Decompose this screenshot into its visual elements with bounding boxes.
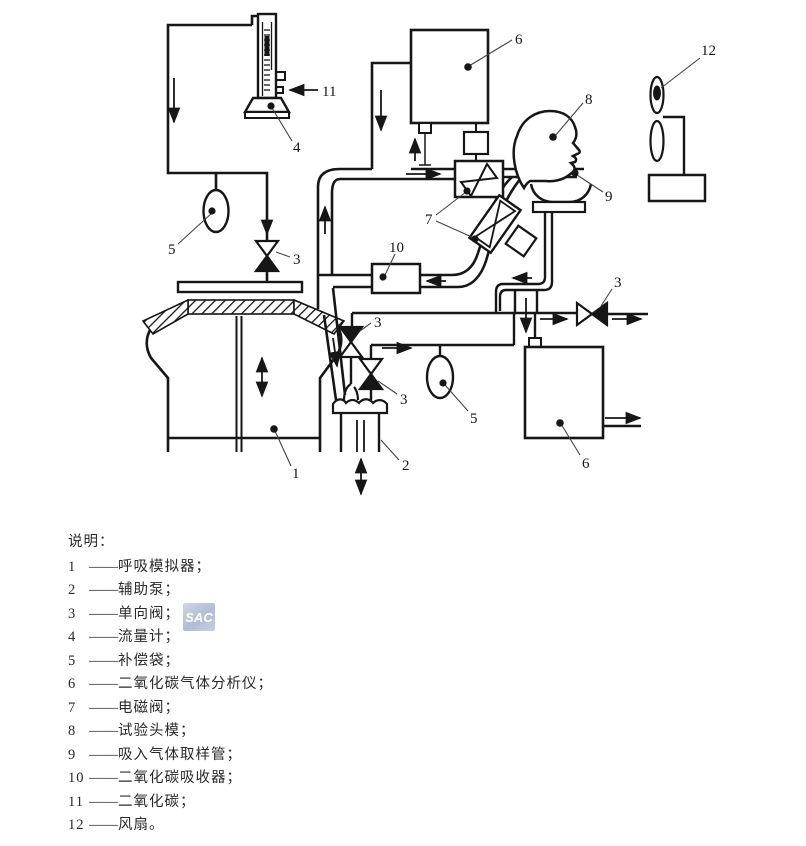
label-4: 4 [293, 140, 301, 156]
legend-item-number: 6 [68, 673, 89, 697]
legend-dash: —— [89, 676, 118, 692]
legend-item: 5——补偿袋； [68, 650, 273, 674]
pedestal-bowl [531, 184, 591, 202]
legend-item-number: 12 [68, 814, 89, 838]
pump-check-valve-outlet [360, 359, 382, 400]
bell-right-wall [320, 327, 341, 452]
breathing-simulator [143, 282, 344, 452]
legend-item-number: 8 [68, 720, 89, 744]
legend-dash: —— [89, 723, 118, 739]
legend-item: 3——单向阀； [68, 603, 273, 627]
pedestal-base [533, 202, 585, 212]
flowmeter [245, 14, 289, 118]
legend-item-number: 7 [68, 697, 89, 721]
solenoid-coil [464, 132, 488, 154]
legend-item-text: 电磁阀； [118, 700, 180, 716]
analyzer-inlet-port [529, 338, 541, 347]
flowmeter-float [265, 36, 270, 56]
label-10: 10 [389, 240, 404, 256]
legend-dash: —— [89, 700, 118, 716]
bell-left-wall [147, 330, 168, 452]
check-valve-simulator-inlet [256, 241, 278, 271]
legend-item: 8——试验头模； [68, 720, 273, 744]
label-5: 5 [168, 242, 176, 258]
solenoid-coil [506, 226, 537, 257]
diaphragm-left-wing [143, 300, 188, 334]
legend-item: 4——流量计； [68, 626, 273, 650]
legend-item-number: 2 [68, 579, 89, 603]
co2-feed-circuit [168, 16, 267, 283]
legend-item: 7——电磁阀； [68, 697, 273, 721]
label-12: 12 [701, 43, 716, 59]
legend-dash: —— [89, 770, 118, 786]
label-5: 5 [470, 411, 478, 427]
label-8: 8 [585, 92, 593, 108]
legend-item-number: 9 [68, 744, 89, 768]
legend-item-number: 3 [68, 603, 89, 627]
flowmeter-base [245, 98, 289, 112]
legend-item: 6——二氧化碳气体分析仪； [68, 673, 273, 697]
legend-item-text: 风扇。 [118, 817, 165, 833]
legend-item: 1——呼吸模拟器； [68, 556, 273, 580]
flowmeter-base-plate [245, 112, 289, 118]
loop-vertical-inner [332, 179, 340, 275]
label-6: 6 [515, 32, 523, 48]
legend-item-number: 11 [68, 791, 89, 815]
diaphragm-band [188, 300, 294, 314]
compensating-bag-left [204, 190, 229, 232]
legend-item: 11——二氧化碳； [68, 791, 273, 815]
legend-dash: —— [89, 817, 118, 833]
legend-item: 2——辅助泵； [68, 579, 273, 603]
check-valve-exhaust [577, 303, 607, 325]
solenoid-coil-exhale [506, 226, 537, 257]
legend-item: 12——风扇。 [68, 814, 273, 838]
label-3: 3 [374, 315, 382, 331]
legend-dash: —— [89, 606, 118, 622]
legend-item-text: 补偿袋； [118, 653, 180, 669]
legend-item-text: 吸入气体取样管； [118, 747, 242, 763]
fan-blade-hub-dark [653, 86, 661, 101]
legend-item: 10——二氧化碳吸收器； [68, 767, 273, 791]
legend-dash: —— [89, 559, 118, 575]
label-11: 11 [322, 84, 336, 100]
fan [649, 77, 705, 201]
auxiliary-pump [333, 384, 387, 452]
legend-dash: —— [89, 629, 118, 645]
analyzer-sample-port [419, 123, 431, 133]
legend-item-text: 流量计； [118, 629, 180, 645]
legend-item-text: 单向阀； [118, 606, 180, 622]
legend-dash: —— [89, 747, 118, 763]
legend: 说明： 1——呼吸模拟器； 2——辅助泵； 3——单向阀； 4——流量计； 5—… [68, 531, 273, 838]
flow-arrow-down [333, 338, 337, 366]
label-6: 6 [582, 456, 590, 472]
legend-item-text: 二氧化碳气体分析仪； [118, 676, 273, 692]
legend-item-number: 5 [68, 650, 89, 674]
legend-item-text: 二氧化碳吸收器； [118, 770, 242, 786]
legend-item-text: 辅助泵； [118, 582, 180, 598]
legend-item: 9——吸入气体取样管； [68, 744, 273, 768]
legend-item-number: 4 [68, 626, 89, 650]
label-3: 3 [400, 392, 408, 408]
figure-page: 1 2 3 3 3 3 4 5 5 6 6 7 8 9 10 11 12 SAC… [0, 0, 806, 846]
co2-absorber-box [372, 264, 420, 293]
fan-stand [663, 117, 684, 175]
label-3: 3 [293, 252, 301, 268]
label-7: 7 [425, 212, 433, 228]
label-2: 2 [402, 458, 410, 474]
pump-neck [344, 384, 358, 400]
legend-item-number: 1 [68, 556, 89, 580]
legend-dash: —— [89, 794, 118, 810]
co2-analyzer-bottom [525, 338, 603, 438]
analyzer-bottom-box [525, 347, 603, 438]
legend-dash: —— [89, 653, 118, 669]
label-3: 3 [614, 275, 622, 291]
label-1: 1 [292, 466, 300, 482]
legend-item-number: 10 [68, 767, 89, 791]
flowmeter-inlet-port [276, 72, 285, 80]
head-pedestal [531, 184, 591, 212]
pump-feed-outer [333, 288, 345, 395]
legend-item-text: 试验头模； [118, 723, 196, 739]
legend-dash: —— [89, 582, 118, 598]
fan-base [649, 175, 705, 201]
analyzer-duct [372, 63, 411, 169]
analyzer-top-box [411, 30, 488, 123]
compensating-bag-right [427, 356, 453, 398]
pump-flange [333, 399, 387, 413]
label-9: 9 [605, 189, 613, 205]
legend-title: 说明： [68, 531, 273, 555]
solenoid-valve-inhale [455, 123, 503, 197]
fan-blade-bottom [651, 121, 664, 161]
simulator-top-plate [178, 282, 302, 292]
legend-item-text: 呼吸模拟器； [118, 559, 211, 575]
legend-item-text: 二氧化碳； [118, 794, 196, 810]
